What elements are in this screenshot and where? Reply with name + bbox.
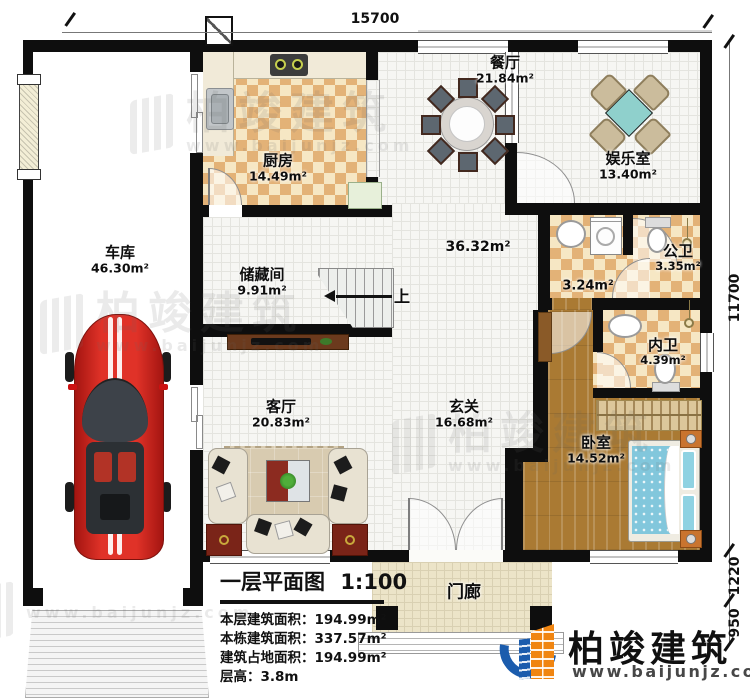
room-label-hall: 36.32m² xyxy=(445,240,510,256)
room-label-foyer: 玄关 16.68m² xyxy=(435,399,493,430)
room-name: 内卫 xyxy=(640,337,685,354)
room-name: 卧室 xyxy=(567,435,625,452)
shower-cord xyxy=(687,218,688,238)
logo-tower-blue xyxy=(519,638,530,679)
room-area: 4.39m² xyxy=(640,354,685,367)
dimension-line-top xyxy=(62,32,712,33)
plant-decor xyxy=(320,338,332,345)
fridge xyxy=(348,182,382,209)
logo-tower-orange xyxy=(531,624,554,679)
wall-segment xyxy=(593,388,700,398)
car-wheel xyxy=(65,352,74,382)
wall-segment xyxy=(505,460,523,550)
room-area: 20.83m² xyxy=(252,415,310,429)
room-area: 21.84m² xyxy=(476,71,534,85)
dimension-tick xyxy=(64,12,75,27)
door-arc-bedroom-suite xyxy=(550,312,592,354)
dimension-right-main: 11700 xyxy=(727,268,743,328)
door-leaf xyxy=(408,498,410,550)
wall-segment xyxy=(538,298,552,310)
door-arc-entrance-right xyxy=(456,498,503,550)
engine-detail xyxy=(100,494,130,520)
washbasin xyxy=(556,220,586,248)
chair xyxy=(421,115,441,135)
title-underline xyxy=(220,600,384,604)
door-leaf xyxy=(208,168,210,205)
info-line: 本栋建筑面积：337.57m² xyxy=(220,630,395,649)
room-name: 车库 xyxy=(91,245,149,262)
wall-segment xyxy=(505,203,712,215)
wall-segment xyxy=(700,40,712,333)
car-engine-cover xyxy=(86,442,144,534)
burner xyxy=(292,59,303,70)
door-leaf xyxy=(501,498,503,550)
company-logo-icon xyxy=(500,612,564,688)
car xyxy=(68,314,168,558)
wardrobe-rod xyxy=(597,414,701,416)
window-cap xyxy=(17,74,41,85)
room-area: 14.49m² xyxy=(249,169,307,183)
sliding-door-garage-kitchen xyxy=(190,72,203,153)
info-line: 建筑占地面积：194.99m² xyxy=(220,649,395,668)
wall-segment xyxy=(190,450,203,606)
door-leaf xyxy=(196,112,203,153)
coffee-table xyxy=(266,460,310,502)
nightstand xyxy=(680,530,702,548)
wall-segment xyxy=(23,172,33,606)
room-name: 门廊 xyxy=(447,583,481,602)
stairs-up-text: 上 xyxy=(394,288,410,306)
room-area: 13.40m² xyxy=(599,167,657,181)
room-area: 46.30m² xyxy=(91,261,149,275)
window-bedroom xyxy=(590,550,678,564)
window-cap xyxy=(17,169,41,180)
bed-duvet-fold xyxy=(664,446,679,534)
plan-scale: 1:100 xyxy=(340,570,407,594)
room-label-porch: 门廊 xyxy=(447,583,481,602)
floor-plan: 15700 11700 1220 950 车库 46.30m² 厨房 14.49… xyxy=(0,0,750,699)
dimension-tick xyxy=(702,14,713,29)
wall-segment xyxy=(678,550,712,562)
stairs-arrow-line xyxy=(336,295,392,298)
floor-bedroom2 xyxy=(523,462,550,550)
room-name: 厨房 xyxy=(249,153,307,170)
stairs-up-label: 上 xyxy=(394,288,410,306)
washer-panel xyxy=(591,221,621,222)
tv xyxy=(251,338,311,345)
nightstand-lamp xyxy=(686,434,696,444)
dimension-top-value: 15700 xyxy=(330,11,420,27)
room-name: 客厅 xyxy=(252,399,310,416)
engine-detail xyxy=(94,452,112,482)
door-arc-private-bath xyxy=(597,352,631,388)
room-area: 9.91m² xyxy=(237,283,286,297)
wall-segment xyxy=(190,52,203,72)
wall-segment xyxy=(190,153,203,385)
tv-cabinet xyxy=(227,334,349,350)
car-mirror xyxy=(68,384,77,390)
floor-vestibule-door xyxy=(552,298,592,310)
driveway-ramp xyxy=(25,610,209,698)
wall-segment xyxy=(23,40,203,52)
wall-segment xyxy=(503,550,590,562)
plant xyxy=(280,473,296,489)
wall-segment xyxy=(508,40,578,52)
wall-segment xyxy=(593,310,603,352)
pillow xyxy=(681,450,696,490)
dimension-right-mid: 1220 xyxy=(727,553,743,599)
side-table-decor xyxy=(345,535,355,545)
window-top-dining xyxy=(418,40,508,54)
side-table-decor xyxy=(219,535,229,545)
room-area: 16.68m² xyxy=(435,415,493,429)
wall-segment xyxy=(592,298,712,310)
room-label-storage: 储藏间 9.91m² xyxy=(237,267,286,298)
flue-vent xyxy=(205,16,233,46)
door-arc-entertainment xyxy=(517,152,575,203)
title-block: 一层平面图 1:100 本层建筑面积：194.99m² 本栋建筑面积：337.5… xyxy=(220,566,395,688)
company-logo-url: www.baijunjz.com xyxy=(572,662,750,681)
washer-drum xyxy=(596,227,615,246)
wardrobe xyxy=(596,400,702,431)
info-line: 层高：3.8m xyxy=(220,668,395,687)
wall-segment xyxy=(203,40,418,52)
room-label-dining: 餐厅 21.84m² xyxy=(476,55,534,86)
room-label-garage: 车库 46.30m² xyxy=(91,245,149,276)
room-name: 娱乐室 xyxy=(599,151,657,168)
door-leaf xyxy=(196,415,203,449)
washing-machine xyxy=(590,217,622,255)
wall-segment xyxy=(366,52,378,80)
nightstand xyxy=(680,430,702,448)
wall-segment xyxy=(538,215,550,310)
door-arc-corridor xyxy=(612,258,650,298)
room-area: 3.35m² xyxy=(655,260,700,273)
wall-segment xyxy=(623,215,633,255)
dining-table-top xyxy=(449,106,485,142)
room-area: 3.24m² xyxy=(562,280,613,295)
chair xyxy=(458,152,478,172)
car-wheel xyxy=(65,482,74,512)
wall-segment xyxy=(203,205,209,217)
burner xyxy=(275,59,286,70)
door-leaf-bedroom xyxy=(538,312,552,362)
room-label-kitchen: 厨房 14.49m² xyxy=(249,153,307,184)
side-table xyxy=(332,524,368,556)
room-label-living: 客厅 20.83m² xyxy=(252,399,310,430)
door-arc-kitchen xyxy=(209,168,242,205)
room-label-bedroom: 卧室 14.52m² xyxy=(567,435,625,466)
wall-segment xyxy=(183,588,203,606)
wall-segment xyxy=(23,588,43,606)
watermark-logo-icon xyxy=(0,581,14,643)
window-top-entertainment xyxy=(578,40,668,54)
sink-basin xyxy=(211,94,229,124)
floor-threshold xyxy=(409,550,503,562)
room-label-entertainment: 娱乐室 13.40m² xyxy=(599,151,657,182)
room-area: 36.32m² xyxy=(445,240,510,256)
engine-detail xyxy=(118,452,136,482)
stairs-arrow-head xyxy=(324,290,335,302)
room-area: 14.52m² xyxy=(567,451,625,465)
room-label-corridor: 3.24m² xyxy=(562,280,613,295)
floor-passthrough xyxy=(366,80,380,177)
info-line: 本层建筑面积：194.99m² xyxy=(220,611,395,630)
nightstand-lamp xyxy=(686,534,696,544)
room-name: 储藏间 xyxy=(237,267,286,284)
room-name: 公卫 xyxy=(655,243,700,260)
room-name: 玄关 xyxy=(435,399,493,416)
room-label-public-bath: 公卫 3.35m² xyxy=(655,243,700,273)
door-arc-entrance-left xyxy=(409,498,456,550)
kitchen-sink xyxy=(206,88,234,130)
washbasin xyxy=(608,314,642,338)
room-label-private-bath: 内卫 4.39m² xyxy=(640,337,685,367)
room-name: 餐厅 xyxy=(476,55,534,72)
side-table xyxy=(206,524,242,556)
window-right-bath xyxy=(700,333,714,372)
plan-title: 一层平面图 xyxy=(220,570,325,594)
sliding-door-garage-living xyxy=(190,385,203,450)
shower-cord xyxy=(689,300,690,320)
stove xyxy=(270,54,308,76)
pillow xyxy=(681,494,696,534)
window-garage-left xyxy=(19,80,39,174)
chair xyxy=(495,115,515,135)
car-mirror xyxy=(159,384,168,390)
